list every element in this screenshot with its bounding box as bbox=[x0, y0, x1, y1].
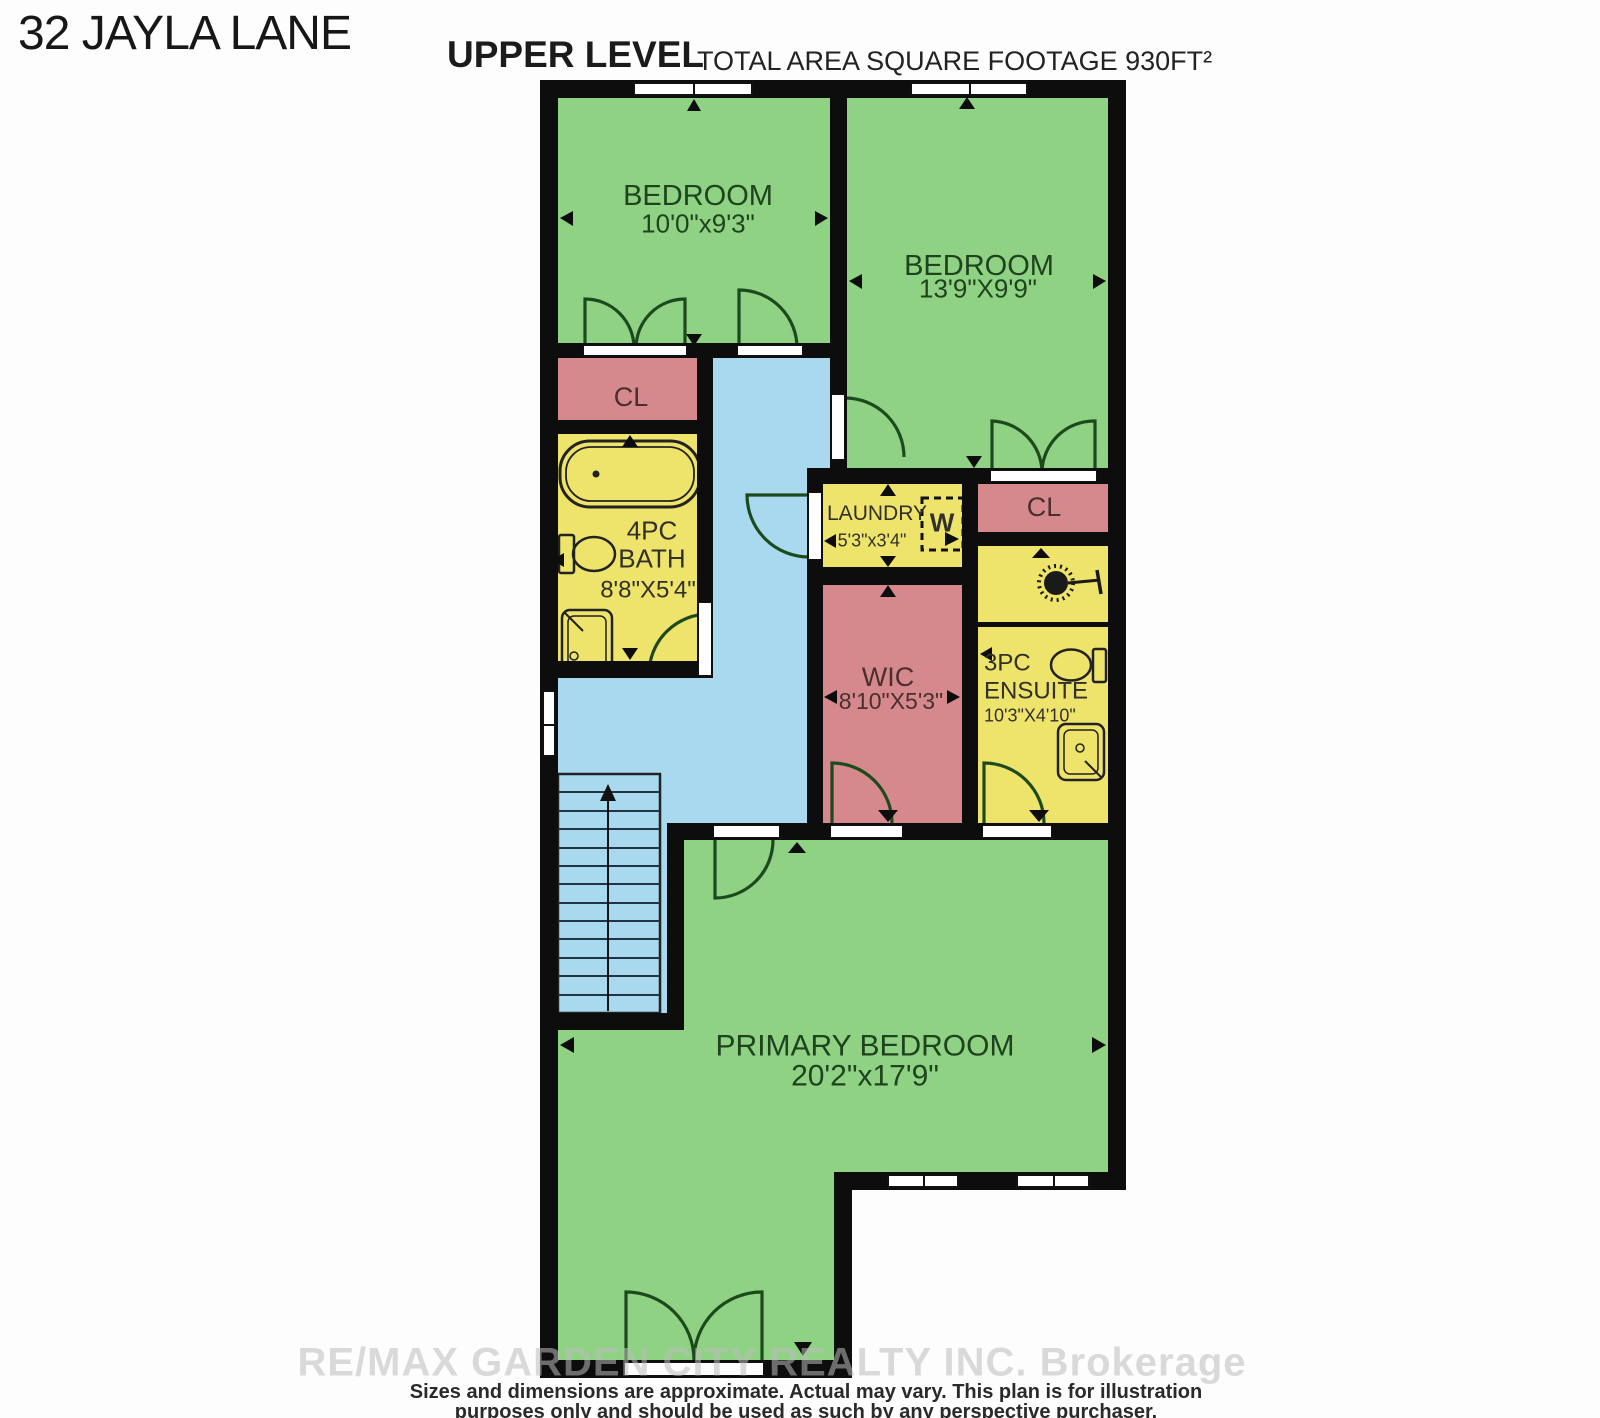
threshold-closet2 bbox=[990, 470, 1097, 482]
label-wic-dims: 8'10"X5'3" bbox=[839, 689, 943, 713]
label-closet1: CL bbox=[614, 383, 649, 411]
window-primary-1 bbox=[887, 1174, 959, 1188]
label-washer: W bbox=[930, 509, 955, 536]
wall-closet1-bottom bbox=[558, 420, 697, 434]
label-bedroom2-dims: 13'9"X9'9" bbox=[919, 275, 1037, 302]
wall-top bbox=[540, 80, 1126, 98]
wall-right bbox=[1108, 80, 1126, 1190]
label-ensuite-line2: ENSUITE bbox=[984, 678, 1088, 703]
label-bath-line1: 4PC bbox=[627, 517, 678, 544]
wall-bath-bottom bbox=[540, 661, 713, 678]
window-primary-2 bbox=[1016, 1174, 1090, 1188]
label-laundry-name: LAUNDRY bbox=[827, 503, 927, 525]
label-laundry-dims: 5'3"x3'4" bbox=[838, 532, 907, 551]
label-bedroom1-dims: 10'0"x9'3" bbox=[641, 210, 755, 237]
hallway-lower bbox=[558, 678, 807, 823]
wall-stairs-bottom bbox=[540, 1013, 684, 1030]
total-area-text: TOTAL AREA SQUARE FOOTAGE 930FT² bbox=[697, 46, 1212, 77]
wall-laundry-bottom bbox=[807, 567, 962, 585]
threshold-primary-entry bbox=[713, 825, 780, 838]
hallway-upper bbox=[713, 358, 830, 468]
label-primary-name: PRIMARY BEDROOM bbox=[716, 1030, 1015, 1062]
threshold-bedroom1-entry bbox=[737, 345, 803, 356]
window-bedroom1 bbox=[633, 82, 753, 96]
wall-wic-ensuite bbox=[962, 545, 978, 823]
brokerage-watermark: RE/MAX GARDEN CITY REALTY INC. Brokerage bbox=[297, 1341, 1246, 1386]
threshold-bath bbox=[698, 602, 712, 676]
label-bath-line2: BATH bbox=[618, 545, 685, 572]
wall-stairs-right bbox=[667, 823, 684, 1030]
window-hallway-left bbox=[542, 690, 556, 757]
stairwell bbox=[558, 823, 667, 1013]
label-primary-dims: 20'2"x17'9" bbox=[791, 1060, 939, 1092]
level-title: UPPER LEVEL bbox=[447, 34, 704, 76]
disclaimer-line-2: purposes only and should be used as such… bbox=[455, 1401, 1157, 1418]
page-title: 32 JAYLA LANE bbox=[18, 6, 351, 61]
threshold-ensuite bbox=[982, 825, 1052, 838]
threshold-wic bbox=[830, 825, 903, 838]
threshold-laundry bbox=[808, 492, 822, 560]
threshold-bedroom2-entry bbox=[831, 394, 845, 460]
hallway-mid bbox=[713, 468, 807, 678]
threshold-bedroom1-closet bbox=[583, 345, 687, 356]
room-primary-bedroom-c bbox=[558, 1172, 834, 1360]
label-wic-name: WIC bbox=[862, 663, 914, 691]
label-bath-dims: 8'8"X5'4" bbox=[600, 577, 696, 602]
label-closet2: CL bbox=[1027, 493, 1062, 521]
wall-closet2-bottom bbox=[962, 532, 1108, 546]
floor-plan-page: 32 JAYLA LANE UPPER LEVEL TOTAL AREA SQU… bbox=[0, 0, 1600, 1418]
label-bedroom1-name: BEDROOM bbox=[623, 181, 773, 211]
shower-enclosure-line bbox=[978, 622, 1108, 627]
label-ensuite-line1: 3PC bbox=[984, 650, 1031, 675]
label-ensuite-dims: 10'3"X4'10" bbox=[984, 707, 1076, 726]
window-bedroom2 bbox=[910, 82, 1028, 96]
room-primary-bedroom-a bbox=[684, 840, 1108, 1030]
